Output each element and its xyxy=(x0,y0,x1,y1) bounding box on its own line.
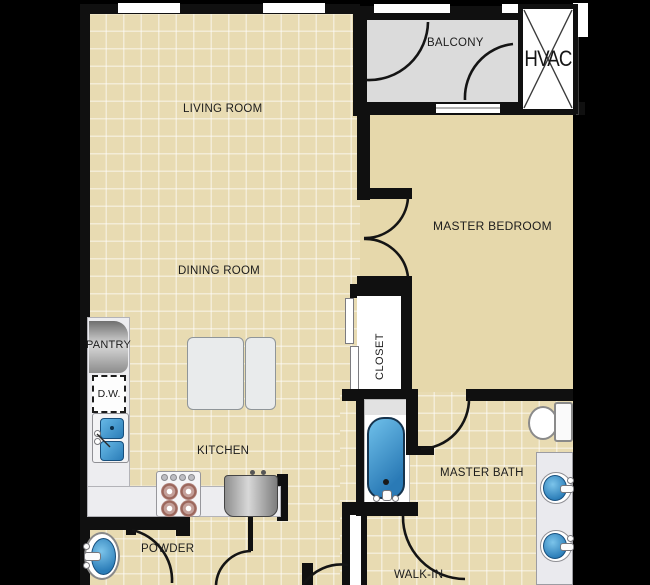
wall-walkin-entry xyxy=(356,502,418,516)
tub-faucet-knob xyxy=(373,495,380,502)
wall-chase xyxy=(350,515,361,585)
stove-knob xyxy=(170,474,177,481)
refrigerator xyxy=(224,475,278,517)
basin-drain xyxy=(110,426,114,430)
room-label-balcony: BALCONY xyxy=(427,37,484,49)
wall-bedroom-west-upper xyxy=(357,102,370,200)
vanity-faucet xyxy=(560,485,574,493)
stove-burner xyxy=(161,500,178,517)
room-label-living: LIVING ROOM xyxy=(183,103,262,115)
room-label-walk-in: WALK-IN xyxy=(394,569,443,581)
closet-sliding-door xyxy=(345,298,354,344)
kitchen-sink xyxy=(92,413,129,463)
door-leaf-hall xyxy=(248,513,253,551)
stove-burner xyxy=(180,500,197,517)
balcony-slider-door xyxy=(436,104,500,113)
dishwasher: D.W. xyxy=(92,375,126,413)
vanity-faucet xyxy=(560,543,574,551)
window xyxy=(118,3,180,13)
wall-bottom-stub xyxy=(302,563,313,585)
bathtub xyxy=(367,417,405,499)
room-label-closet: CLOSET xyxy=(374,306,386,380)
pedestal-sink-faucet xyxy=(84,552,101,561)
dining-table-leaf xyxy=(245,337,276,410)
stove-burner xyxy=(161,483,178,500)
sink-basin xyxy=(100,441,124,461)
tub-drain xyxy=(383,479,389,485)
wall-living-balcony-vertical xyxy=(353,6,367,116)
stove-knob xyxy=(161,474,168,481)
wall-bathdoor-stub xyxy=(412,446,434,455)
floor-plan: D.W. xyxy=(0,0,650,585)
pedestal-faucet-knob xyxy=(83,543,90,550)
room-label-pantry: PANTRY xyxy=(86,339,131,351)
room-label-master-bedroom: MASTER BEDROOM xyxy=(433,219,552,233)
vanity-faucet-knob xyxy=(567,535,574,542)
window xyxy=(263,3,325,13)
tub-faucet-knob xyxy=(392,495,399,502)
wall-kitchen-step xyxy=(176,516,190,536)
dishwasher-label: D.W. xyxy=(98,388,121,400)
refrigerator-knob xyxy=(261,470,266,475)
dining-table xyxy=(187,337,244,410)
stove-burner xyxy=(180,483,197,500)
room-label-powder: POWDER xyxy=(141,543,194,555)
toilet-tank xyxy=(554,402,573,442)
wall-stub-door-top xyxy=(357,188,412,199)
vanity-faucet-knob xyxy=(567,477,574,484)
room-label-master-bath: MASTER BATH xyxy=(440,467,524,479)
wall-powder-hinge xyxy=(126,526,136,535)
tub-spout xyxy=(382,490,392,501)
room-label-dining: DINING ROOM xyxy=(178,265,260,277)
room-label-hvac: HVAC xyxy=(524,46,572,72)
tub-alcove-shelf xyxy=(365,400,409,415)
range-stove xyxy=(156,471,201,517)
closet-sliding-door xyxy=(350,346,359,393)
room-label-kitchen: KITCHEN xyxy=(197,445,249,457)
faucet-knob xyxy=(94,430,101,437)
wall-bedroom-bath xyxy=(466,389,573,401)
stove-knob xyxy=(179,474,186,481)
refrigerator-knob xyxy=(250,470,255,475)
window xyxy=(374,4,450,13)
faucet-knob xyxy=(94,438,101,445)
balcony-floor xyxy=(358,12,521,112)
stove-knob xyxy=(188,474,195,481)
pedestal-faucet-knob xyxy=(83,562,90,569)
